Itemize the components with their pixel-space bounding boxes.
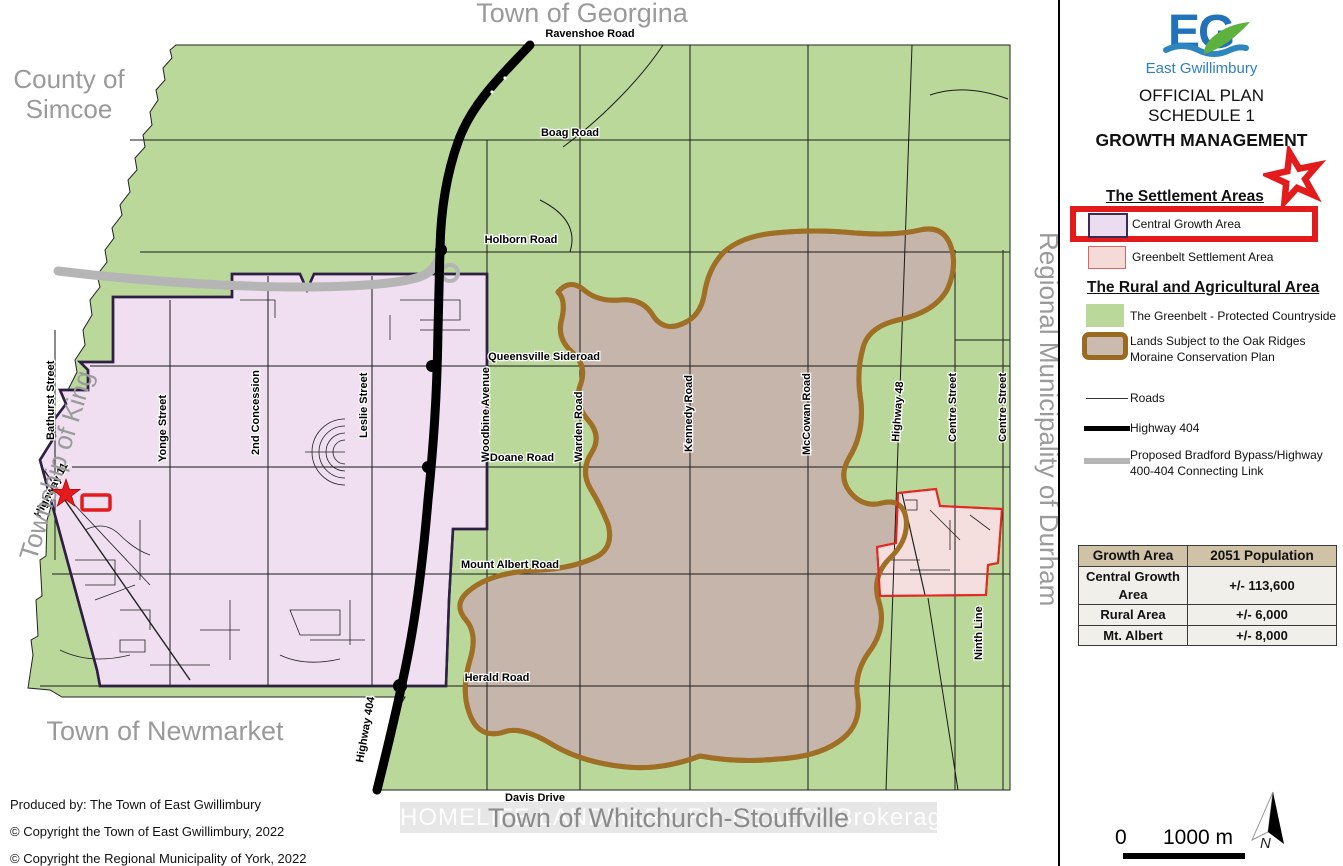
durham-label: Regional Municipality of Durham xyxy=(1034,232,1060,606)
road-label: Highway 404 xyxy=(354,695,378,764)
roads-label: Roads xyxy=(1130,391,1165,405)
moraine-swatch xyxy=(1082,332,1128,360)
proposed-bypass-label-line2: 400-404 Connecting Link xyxy=(1130,464,1263,478)
map-canvas: Ravenshoe Road Boag Road Holborn Road Qu… xyxy=(0,0,1060,866)
cell-population: +/- 113,600 xyxy=(1188,567,1337,605)
eg-logo: EG xyxy=(1146,4,1258,62)
col-header-2051-population: 2051 Population xyxy=(1188,546,1337,567)
road-label: Centre Street xyxy=(997,373,1009,442)
road-label: Queensville Sideroad xyxy=(488,351,600,363)
georgina-label: Town of Georgina xyxy=(476,0,689,28)
road-label: Yonge Street xyxy=(157,395,169,462)
town-copyright-credit: © Copyright the Town of East Gwillimbury… xyxy=(10,824,284,839)
greenbelt-settlement-label: Greenbelt Settlement Area xyxy=(1132,250,1273,264)
north-arrow-icon: N xyxy=(1238,788,1308,858)
growth-management-map-page: { "map": { "outer_labels": { "georgina":… xyxy=(0,0,1343,866)
cell-area: Mt. Albert xyxy=(1079,625,1188,646)
plan-title-line1: OFFICIAL PLAN xyxy=(1060,86,1343,106)
road-label: 2nd Concession xyxy=(250,370,262,455)
legend-star-icon xyxy=(1263,146,1327,210)
table-header-row: Growth Area 2051 Population xyxy=(1079,546,1337,567)
settlement-areas-heading: The Settlement Areas xyxy=(1106,188,1264,206)
scale-distance-label: 1000 m xyxy=(1163,826,1233,850)
greenbelt-swatch xyxy=(1086,304,1124,327)
roads-line-swatch xyxy=(1086,398,1128,399)
population-table: Growth Area 2051 Population Central Grow… xyxy=(1078,545,1337,646)
highway-404-swatch xyxy=(1084,426,1130,431)
greenbelt-label: The Greenbelt - Protected Countryside xyxy=(1130,309,1336,323)
produced-by-credit: Produced by: The Town of East Gwillimbur… xyxy=(10,797,261,812)
col-header-growth-area: Growth Area xyxy=(1079,546,1188,567)
moraine-label-line1: Lands Subject to the Oak Ridges xyxy=(1130,334,1305,348)
central-growth-label: Central Growth Area xyxy=(1132,217,1241,231)
cell-area: Central Growth Area xyxy=(1079,567,1188,605)
table-row: Rural Area +/- 6,000 xyxy=(1079,605,1337,626)
table-row: Mt. Albert +/- 8,000 xyxy=(1079,625,1337,646)
scale-bar xyxy=(1123,853,1245,859)
road-label: Boag Road xyxy=(541,127,599,139)
highway-404-label: Highway 404 xyxy=(1130,421,1199,435)
plan-title-line2: SCHEDULE 1 xyxy=(1060,106,1343,126)
road-label: Ninth Line xyxy=(973,606,985,660)
road-label: Leslie Street xyxy=(358,372,370,438)
road-label: Mount Albert Road xyxy=(461,559,559,571)
north-letter: N xyxy=(1260,835,1271,852)
road-label: Warden Road xyxy=(573,392,585,463)
cell-area: Rural Area xyxy=(1079,605,1188,626)
road-label: Kennedy Road xyxy=(683,375,695,452)
region-copyright-credit: © Copyright the Regional Municipality of… xyxy=(10,851,306,866)
scale-zero-label: 0 xyxy=(1115,826,1127,850)
greenbelt-settlement-swatch xyxy=(1088,246,1126,269)
road-label: Ravenshoe Road xyxy=(545,28,634,40)
central-growth-swatch xyxy=(1088,213,1128,238)
road-label: Holborn Road xyxy=(485,234,558,246)
table-row: Central Growth Area +/- 113,600 xyxy=(1079,567,1337,605)
road-label: McCowan Road xyxy=(801,373,813,455)
simcoe-label-line1: County of xyxy=(13,64,125,94)
road-label: Herald Road xyxy=(465,672,530,684)
proposed-bypass-swatch xyxy=(1084,458,1130,464)
whitchurch-label: Town of Whitchurch-Stouffville xyxy=(400,803,937,834)
rural-area-heading: The Rural and Agricultural Area xyxy=(1087,279,1319,297)
road-label: Centre Street xyxy=(947,373,959,442)
cell-population: +/- 8,000 xyxy=(1188,625,1337,646)
moraine-label-line2: Moraine Conservation Plan xyxy=(1130,350,1275,364)
legend-panel: EG East Gwillimbury OFFICIAL PLAN SCHEDU… xyxy=(1060,0,1343,866)
road-label: Woodbine Avenue xyxy=(480,367,492,462)
proposed-bypass-label-line1: Proposed Bradford Bypass/Highway xyxy=(1130,448,1323,462)
road-label: Doane Road xyxy=(490,452,554,464)
simcoe-label-line2: Simcoe xyxy=(26,94,113,124)
newmarket-label: Town of Newmarket xyxy=(46,716,284,746)
logo-municipality-name: East Gwillimbury xyxy=(1060,60,1343,77)
cell-population: +/- 6,000 xyxy=(1188,605,1337,626)
